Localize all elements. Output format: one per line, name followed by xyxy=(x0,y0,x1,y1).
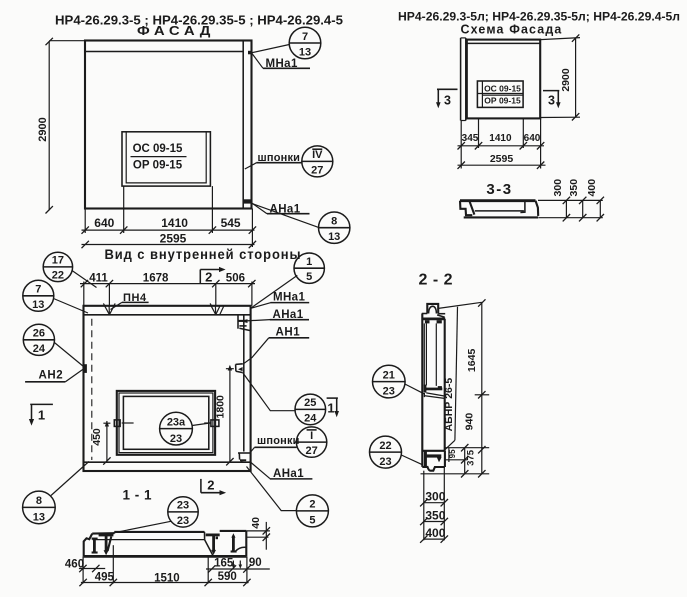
svg-text:23: 23 xyxy=(383,386,395,398)
svg-text:640: 640 xyxy=(94,216,114,230)
svg-text:640: 640 xyxy=(524,133,541,144)
svg-text:23: 23 xyxy=(177,515,189,527)
svg-text:400: 400 xyxy=(425,526,445,540)
svg-text:411: 411 xyxy=(89,273,108,285)
svg-text:8: 8 xyxy=(331,216,337,228)
svg-text:23: 23 xyxy=(177,500,189,512)
svg-text:23: 23 xyxy=(379,456,391,468)
svg-text:5: 5 xyxy=(309,515,315,527)
svg-text:I: I xyxy=(310,430,313,442)
svg-text:3-3: 3-3 xyxy=(486,181,512,198)
svg-text:1510: 1510 xyxy=(154,572,180,584)
svg-text:ОР 09-15: ОР 09-15 xyxy=(484,96,521,106)
svg-text:ФАСАД: ФАСАД xyxy=(137,23,215,38)
svg-text:450: 450 xyxy=(91,428,103,446)
svg-text:1678: 1678 xyxy=(143,273,169,285)
svg-text:шпонки: шпонки xyxy=(257,435,300,447)
svg-text:2595: 2595 xyxy=(490,153,514,165)
svg-text:МНа1: МНа1 xyxy=(273,292,305,304)
svg-text:90: 90 xyxy=(249,557,262,569)
svg-text:24: 24 xyxy=(33,343,46,355)
svg-text:МНа1: МНа1 xyxy=(266,58,298,70)
svg-text:5: 5 xyxy=(306,271,312,283)
svg-text:22: 22 xyxy=(379,440,391,452)
svg-text:165: 165 xyxy=(214,558,234,570)
svg-text:24: 24 xyxy=(304,413,317,425)
svg-text:1 - 1: 1 - 1 xyxy=(122,488,152,503)
svg-text:25: 25 xyxy=(304,397,316,409)
svg-text:300: 300 xyxy=(425,490,445,504)
svg-text:7: 7 xyxy=(302,31,308,43)
svg-text:IV: IV xyxy=(312,149,323,161)
svg-text:95: 95 xyxy=(448,449,457,458)
svg-text:1410: 1410 xyxy=(161,216,188,230)
svg-text:3: 3 xyxy=(548,94,555,108)
svg-text:АНа1: АНа1 xyxy=(273,468,304,480)
svg-text:2 - 2: 2 - 2 xyxy=(419,272,454,289)
svg-text:2: 2 xyxy=(309,499,315,511)
svg-text:17: 17 xyxy=(52,255,64,267)
svg-text:23: 23 xyxy=(170,433,182,445)
svg-text:300: 300 xyxy=(552,179,564,197)
svg-text:ОР 09-15: ОР 09-15 xyxy=(133,160,183,172)
svg-text:1: 1 xyxy=(306,256,312,268)
svg-text:2595: 2595 xyxy=(160,232,187,246)
svg-text:Вид с внутренней стороны: Вид с внутренней стороны xyxy=(105,246,302,262)
svg-text:26: 26 xyxy=(33,328,45,340)
svg-text:40: 40 xyxy=(250,517,262,529)
svg-text:7: 7 xyxy=(35,284,41,296)
svg-text:АБНР 26-5: АБНР 26-5 xyxy=(443,378,455,432)
svg-text:21: 21 xyxy=(383,369,395,381)
svg-text:350: 350 xyxy=(568,179,580,197)
svg-text:350: 350 xyxy=(425,508,445,522)
svg-text:940: 940 xyxy=(463,413,475,431)
svg-text:27: 27 xyxy=(305,445,317,457)
svg-text:1: 1 xyxy=(38,408,45,423)
svg-text:8: 8 xyxy=(36,495,42,507)
svg-text:АНа1: АНа1 xyxy=(270,203,301,215)
svg-text:545: 545 xyxy=(221,216,241,230)
svg-text:ОС 09-15: ОС 09-15 xyxy=(133,143,183,155)
svg-text:1410: 1410 xyxy=(489,133,512,144)
svg-text:ОС 09-15: ОС 09-15 xyxy=(484,83,521,93)
svg-text:13: 13 xyxy=(328,231,340,243)
svg-text:495: 495 xyxy=(95,571,115,583)
svg-text:Схема Фасада: Схема Фасада xyxy=(461,21,563,36)
svg-text:2900: 2900 xyxy=(560,68,572,92)
svg-text:460: 460 xyxy=(65,558,84,570)
svg-text:375: 375 xyxy=(465,449,476,466)
svg-text:13: 13 xyxy=(33,512,45,524)
svg-text:23а: 23а xyxy=(167,416,186,428)
svg-text:22: 22 xyxy=(52,269,64,281)
svg-text:2900: 2900 xyxy=(37,117,49,141)
svg-text:2: 2 xyxy=(205,270,212,285)
svg-text:3: 3 xyxy=(444,94,451,108)
svg-text:345: 345 xyxy=(462,133,479,144)
svg-text:1: 1 xyxy=(327,401,334,416)
svg-text:1645: 1645 xyxy=(466,349,478,373)
svg-text:1800: 1800 xyxy=(214,395,226,419)
svg-text:АН2: АН2 xyxy=(39,370,64,382)
svg-text:590: 590 xyxy=(218,571,237,583)
svg-text:27: 27 xyxy=(311,165,323,177)
svg-text:13: 13 xyxy=(299,47,311,59)
svg-text:506: 506 xyxy=(226,273,245,285)
svg-text:2: 2 xyxy=(207,477,214,492)
svg-text:400: 400 xyxy=(586,179,598,197)
svg-text:13: 13 xyxy=(32,299,44,311)
svg-text:АН1: АН1 xyxy=(276,326,301,338)
svg-text:АНа1: АНа1 xyxy=(273,309,304,321)
